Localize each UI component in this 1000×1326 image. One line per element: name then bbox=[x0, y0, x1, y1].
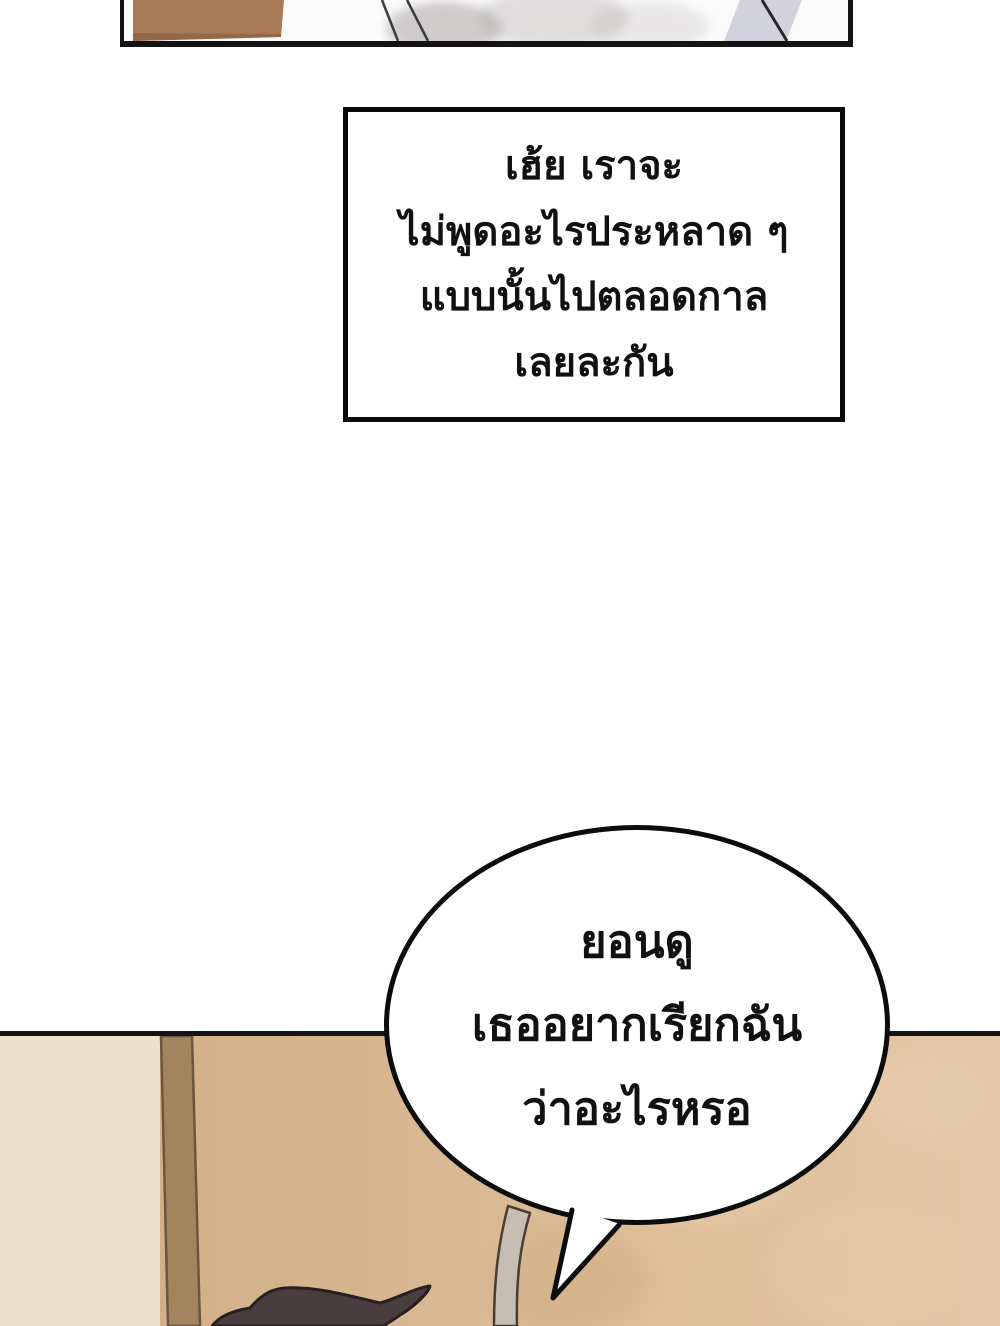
dialog-line: เลยละกัน bbox=[514, 340, 673, 386]
webtoon-page: { "dialog_box": { "lines": [ "เฮ้ย เราจะ… bbox=[0, 0, 1000, 1326]
bubble-line: เธออยากเรียกฉัน bbox=[472, 1001, 802, 1048]
speech-bubble: ยอนดู เธออยากเรียกฉัน ว่าอะไรหรอ bbox=[384, 825, 890, 1225]
dialog-line: เฮ้ย เราจะ bbox=[505, 143, 683, 189]
top-comic-panel bbox=[120, 0, 853, 47]
bubble-line: ว่าอะไรหรอ bbox=[522, 1085, 751, 1132]
dialog-line: ไม่พูดอะไรประหลาด ๆ bbox=[399, 209, 788, 255]
dialog-box: เฮ้ย เราจะ ไม่พูดอะไรประหลาด ๆ แบบนั้นไป… bbox=[343, 107, 845, 422]
wood-surface-edge bbox=[133, 33, 281, 41]
wall-texture-blob bbox=[770, 1206, 950, 1326]
bubble-line: ยอนดู bbox=[580, 918, 693, 965]
top-panel-art bbox=[124, 0, 848, 41]
wood-pole bbox=[161, 1036, 200, 1326]
cloth-bluegray-shape bbox=[724, 0, 802, 41]
dialog-line: แบบนั้นไปตลอดกาล bbox=[420, 274, 768, 320]
wall-cream-area bbox=[0, 1036, 180, 1326]
